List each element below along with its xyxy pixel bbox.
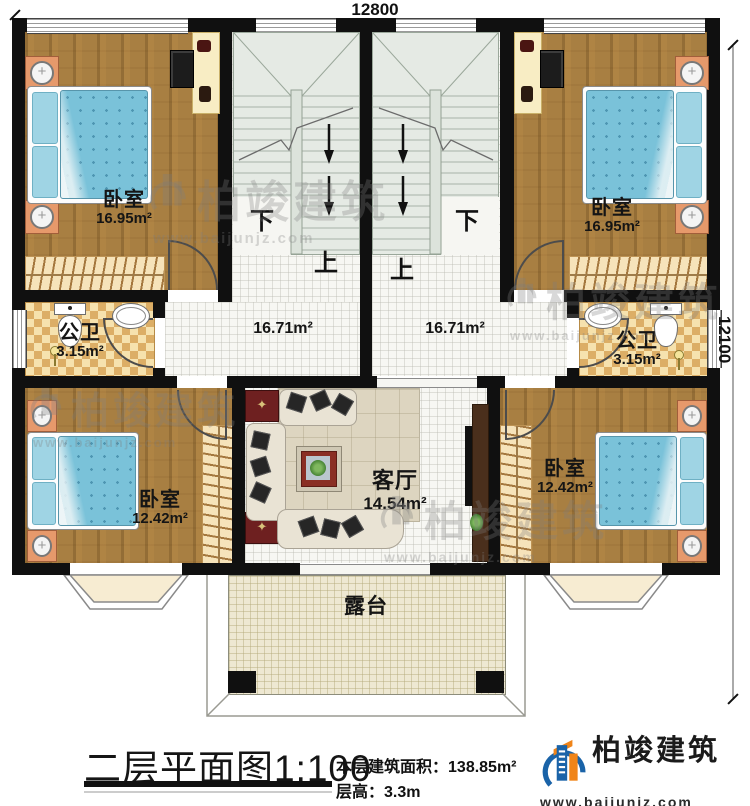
wall bbox=[707, 368, 720, 575]
decor-bottle-icon bbox=[520, 40, 534, 52]
nightstand-lamp-icon bbox=[677, 400, 707, 432]
window bbox=[544, 18, 705, 34]
label-bath-left: 公卫 3.15m² bbox=[30, 322, 130, 361]
wall bbox=[12, 376, 177, 388]
bed bbox=[582, 86, 707, 204]
terrace-post bbox=[476, 671, 504, 693]
nightstand-lamp-icon bbox=[677, 530, 707, 562]
doorway-threshold bbox=[377, 378, 477, 388]
nightstand-lamp-icon bbox=[27, 400, 57, 432]
pillow bbox=[680, 482, 704, 525]
floor-area-value: 138.85m² bbox=[448, 759, 517, 776]
tv-icon bbox=[465, 426, 472, 506]
stair-up-label-left: 上 bbox=[314, 243, 338, 278]
tv-cabinet bbox=[472, 404, 489, 562]
title-underline bbox=[84, 781, 332, 787]
wall bbox=[218, 290, 232, 302]
pillow bbox=[680, 437, 704, 480]
label-bedroom-top-left: 卧室 16.95m² bbox=[64, 189, 184, 228]
sink-icon bbox=[584, 303, 622, 329]
wall bbox=[153, 302, 165, 318]
sofa-pillow-icon bbox=[250, 430, 270, 450]
floor-height-value: 3.3m bbox=[384, 784, 420, 801]
nightstand-lamp-icon bbox=[675, 56, 709, 90]
blanket bbox=[586, 90, 674, 199]
floor-height-line: 层高：3.3m bbox=[336, 778, 420, 802]
sofa bbox=[277, 509, 404, 549]
wall bbox=[564, 290, 720, 302]
side-table-icon: ✦ bbox=[245, 390, 279, 422]
label-terrace: 露台 bbox=[316, 595, 416, 619]
tv-icon bbox=[540, 50, 564, 88]
label-bedroom-bottom-right: 卧室 12.42m² bbox=[505, 458, 625, 497]
nightstand-lamp-icon bbox=[25, 56, 59, 90]
brand-logo-icon bbox=[540, 736, 586, 794]
decor-bottle-icon bbox=[521, 86, 533, 102]
pillow bbox=[676, 92, 702, 144]
terrace-post bbox=[228, 671, 256, 693]
wall bbox=[12, 563, 70, 575]
toilet-icon bbox=[54, 303, 86, 315]
wall bbox=[500, 32, 514, 290]
window bbox=[12, 310, 27, 368]
wall bbox=[567, 302, 579, 318]
bed bbox=[27, 86, 152, 204]
wall bbox=[336, 18, 396, 32]
nightstand-lamp-icon bbox=[675, 200, 709, 234]
stair-down-label-left: 下 bbox=[250, 201, 274, 236]
floor-area-line: 本层建筑面积：138.85m² bbox=[336, 753, 517, 777]
staircase-right bbox=[372, 32, 499, 270]
label-hall-right-area: 16.71m² bbox=[405, 320, 505, 338]
pillow bbox=[676, 146, 702, 198]
wall bbox=[555, 376, 720, 388]
floor-plan-page: 下 上 上 下 bbox=[0, 0, 750, 806]
wall bbox=[500, 290, 514, 302]
label-hall-left-area: 16.71m² bbox=[233, 320, 333, 338]
blanket bbox=[60, 90, 148, 199]
title-underline-shadow bbox=[84, 791, 332, 793]
wall bbox=[12, 290, 168, 302]
plant-icon bbox=[470, 514, 483, 531]
wall bbox=[218, 32, 232, 290]
dimension-right: 12100 bbox=[714, 316, 734, 360]
floor-area-label: 本层建筑面积： bbox=[336, 759, 448, 776]
label-bedroom-top-right: 卧室 16.95m² bbox=[552, 197, 672, 236]
sliding-door bbox=[300, 564, 430, 575]
stair-down-label-right: 下 bbox=[455, 201, 479, 236]
label-bedroom-bottom-left: 卧室 12.42m² bbox=[100, 489, 220, 528]
pillow bbox=[32, 146, 58, 198]
dimension-top: 12800 bbox=[330, 0, 420, 20]
nightstand-lamp-icon bbox=[25, 200, 59, 234]
wall bbox=[12, 368, 25, 575]
wall bbox=[12, 18, 25, 310]
label-bath-right: 公卫 3.15m² bbox=[587, 330, 687, 369]
wall bbox=[662, 563, 720, 575]
wall bbox=[227, 376, 377, 388]
pillow bbox=[32, 482, 56, 525]
pillow bbox=[32, 437, 56, 480]
wall bbox=[188, 18, 256, 32]
brand-logo: 柏竣建筑 www.baijunjz.com bbox=[540, 736, 740, 796]
stair-up-label-right: 上 bbox=[390, 250, 414, 285]
nightstand-lamp-icon bbox=[27, 530, 57, 562]
label-living: 客厅 14.54m² bbox=[335, 469, 455, 513]
decor-bottle-icon bbox=[199, 86, 211, 102]
wall bbox=[360, 32, 372, 384]
wall bbox=[232, 384, 245, 575]
window bbox=[27, 18, 188, 34]
pillow bbox=[32, 92, 58, 144]
toilet-icon bbox=[650, 303, 682, 315]
plant-icon bbox=[310, 460, 326, 476]
tv-icon bbox=[170, 50, 194, 88]
decor-bottle-icon bbox=[197, 40, 211, 52]
floor-height-label: 层高： bbox=[336, 784, 384, 801]
wall bbox=[476, 18, 544, 32]
